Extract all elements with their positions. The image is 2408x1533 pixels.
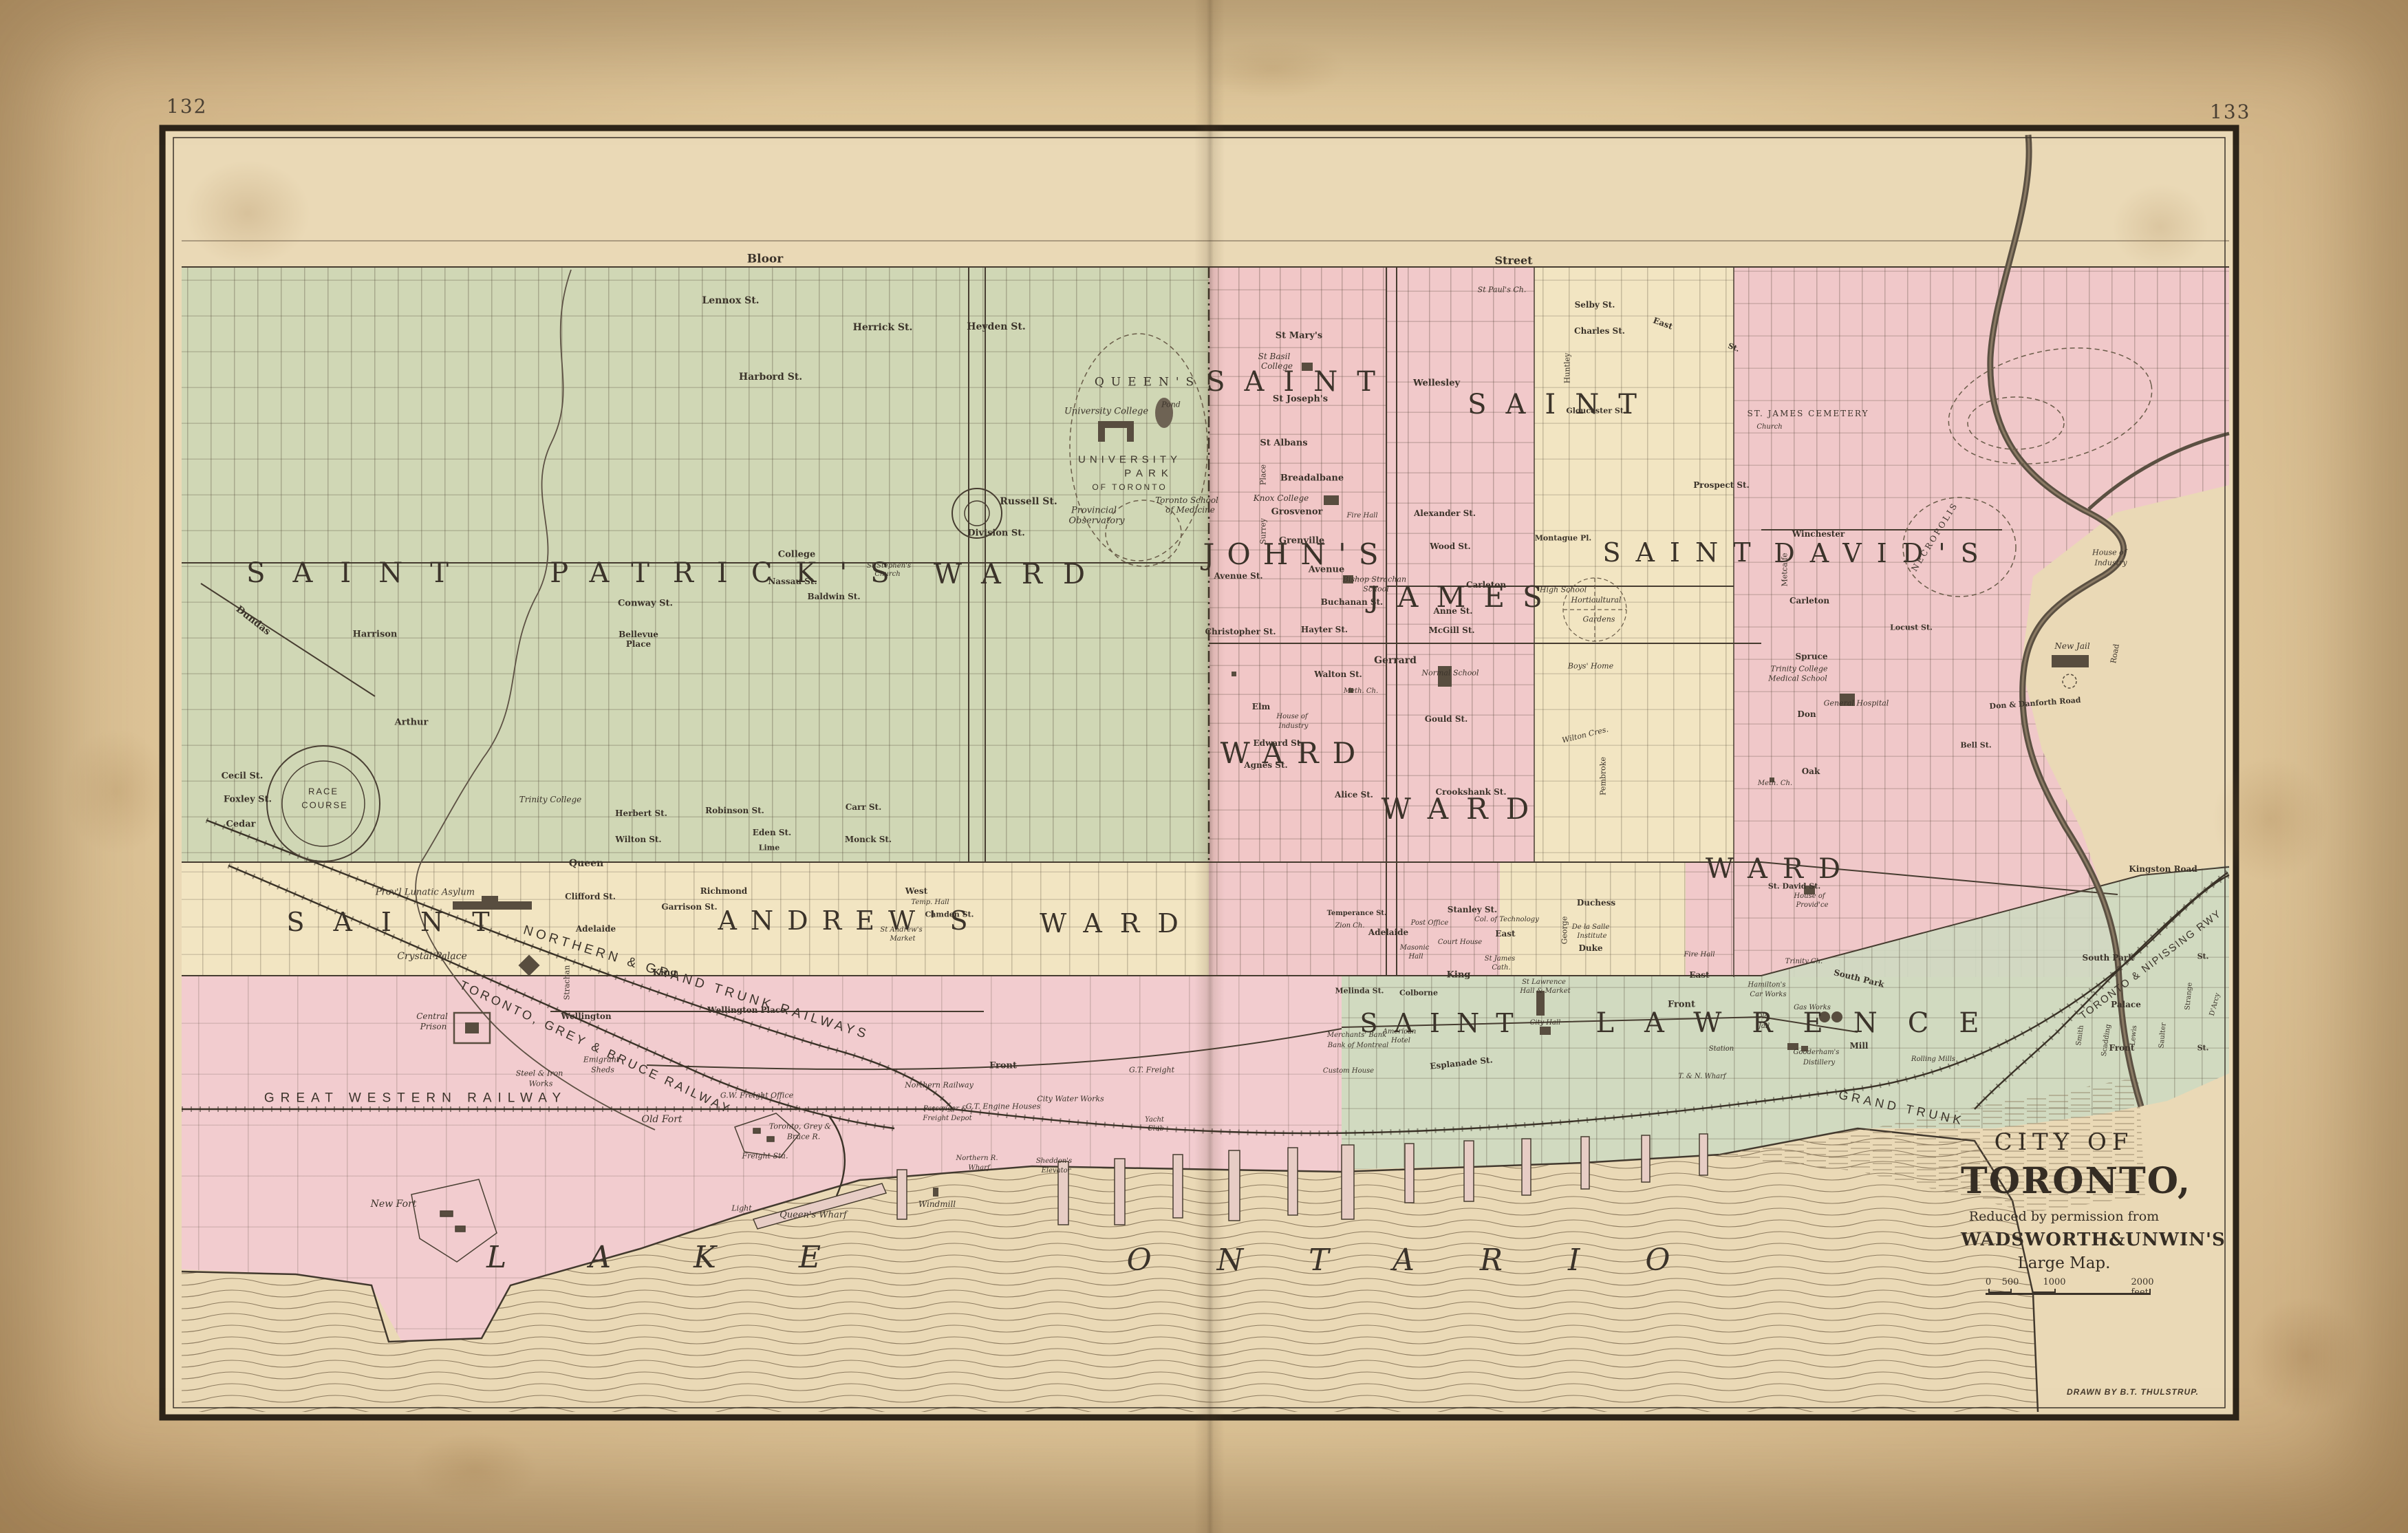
map-label: East xyxy=(1652,316,1674,330)
map-label: Zion Ch. xyxy=(1335,923,1364,930)
map-label: NORTHERN & GRAND TRUNK RAILWAYS xyxy=(522,923,870,1042)
map-label: Distillery xyxy=(1803,1060,1835,1066)
map-label: Pond xyxy=(1161,401,1181,409)
map-label: Herrick St. xyxy=(853,323,913,332)
map-label: Duke xyxy=(1578,944,1602,952)
map-label: Anne St. xyxy=(1434,607,1473,615)
map-label: St Albans xyxy=(1260,439,1307,448)
map-label: Alice St. xyxy=(1335,791,1373,799)
map-label: Smith xyxy=(2076,1025,2085,1046)
map-label: Cecil St. xyxy=(222,772,264,781)
map-label: Gooderham's xyxy=(1794,1049,1840,1056)
map-label: St. xyxy=(2197,1044,2209,1052)
map-label: Central xyxy=(416,1012,448,1020)
map-label: St James xyxy=(1485,956,1516,963)
map-label: Winchester xyxy=(1792,530,1845,538)
map-label: Provid'ce xyxy=(1796,902,1828,909)
map-label: Car Works xyxy=(1750,991,1786,998)
map-label: Don & Danforth Road xyxy=(1989,696,2081,710)
map-label: WARD xyxy=(1221,739,1370,768)
map-label: Adelaide xyxy=(576,925,616,933)
map-label: Pembroke xyxy=(1600,757,1607,795)
map-label: Observatory xyxy=(1068,517,1124,526)
map-label: Place xyxy=(1260,464,1267,485)
map-label: Colborne xyxy=(1399,989,1438,997)
map-label: Carr St. xyxy=(846,803,882,811)
map-label: Bruce R. xyxy=(787,1133,820,1141)
map-label: St Mary's xyxy=(1276,332,1322,341)
map-label: Kingston Road xyxy=(2129,865,2197,873)
map-label: Boys' Home xyxy=(1568,663,1613,670)
map-label: Court House xyxy=(1438,939,1482,946)
map-label: Gas Works xyxy=(1794,1005,1831,1011)
map-label: St Stephen's xyxy=(867,563,911,570)
map-label: WARD xyxy=(1040,910,1196,936)
map-label: SAINT xyxy=(1206,368,1395,396)
map-label: Road xyxy=(2109,643,2120,664)
map-label: House of xyxy=(1794,893,1825,900)
map-label: Grosvenor xyxy=(1271,508,1323,517)
map-label: Street xyxy=(1494,255,1532,266)
map-label: Custom House xyxy=(1323,1068,1374,1075)
map-title: TORONTO, xyxy=(1961,1160,2167,1202)
drawn-by-credit: DRAWN BY B.T. THULSTRUP. xyxy=(2067,1387,2199,1397)
map-label: Esplanade St. xyxy=(1430,1055,1493,1071)
map-labels: BloorStreetLennox St.Herrick St.Heyden S… xyxy=(0,0,2408,1533)
map-label: Queen xyxy=(569,859,603,868)
map-label: Meth. Ch. xyxy=(1758,780,1792,787)
map-label: SAINT xyxy=(246,559,476,587)
map-label: Russell St. xyxy=(1000,497,1057,506)
map-label: Baldwin St. xyxy=(807,592,860,601)
map-label: St. xyxy=(2197,953,2209,961)
map-label: Hamilton's xyxy=(1748,982,1786,989)
map-label: RACE xyxy=(308,787,338,796)
map-label: High School xyxy=(1540,586,1587,594)
map-label: Agnes St. xyxy=(1244,761,1287,769)
map-label: Wellesley xyxy=(1413,379,1460,388)
map-label: Cedar xyxy=(226,820,256,829)
map-label: Meth. Ch. xyxy=(1344,688,1378,695)
map-subtitle: Reduced by permission from xyxy=(1961,1209,2167,1224)
map-label: Gloucester St. xyxy=(1566,407,1626,415)
map-label: Works xyxy=(529,1080,553,1088)
map-label: Church xyxy=(874,571,900,578)
map-label: Provincial xyxy=(1071,506,1117,515)
map-label: G.T. Engine Houses xyxy=(966,1103,1040,1111)
map-label: G.T. Freight xyxy=(1129,1066,1174,1074)
map-label: College xyxy=(1261,362,1293,370)
map-label: Bell St. xyxy=(1960,742,1991,749)
map-label: Gerrard xyxy=(1374,656,1417,665)
map-label: Northern Railway xyxy=(905,1082,974,1089)
map-label: Conway St. xyxy=(618,599,673,608)
map-label: Garrison St. xyxy=(661,903,717,911)
map-label: City Hall xyxy=(1530,1020,1561,1027)
map-label: George xyxy=(1561,916,1569,945)
map-label: Gould St. xyxy=(1425,715,1468,723)
map-label: Huntley xyxy=(1564,353,1571,383)
map-label: South Park xyxy=(1833,968,1885,989)
map-label: Don xyxy=(1797,710,1816,718)
map-label: G.W. Freight Office xyxy=(720,1092,793,1100)
map-label: University College xyxy=(1064,407,1148,416)
map-label: Selby St. xyxy=(1575,301,1615,309)
map-label: Richmond xyxy=(700,887,747,895)
map-label: DAVID'S xyxy=(1774,540,1993,566)
map-label: Breadalbane xyxy=(1280,474,1344,483)
map-label: Church xyxy=(1756,424,1782,431)
map-label: Temp. Hall xyxy=(911,899,949,906)
map-label: City Water Works xyxy=(1037,1095,1104,1103)
map-label: Freight Depot xyxy=(923,1115,971,1122)
map-label: Hall & Market xyxy=(1520,988,1570,995)
map-label: De la Salle xyxy=(1572,924,1610,931)
map-label: Institute xyxy=(1577,933,1606,940)
map-label: St. David St. xyxy=(1768,883,1820,890)
map-label: Oak xyxy=(1802,767,1820,775)
map-label: GRAND TRUNK xyxy=(1838,1089,1966,1127)
map-label: St Joseph's xyxy=(1273,395,1328,404)
map-label: Masonic xyxy=(1400,945,1430,952)
map-label: Strange xyxy=(2184,982,2193,1010)
map-label: Herbert St. xyxy=(615,809,667,817)
map-label: Toronto School xyxy=(1155,496,1218,504)
map-label: Toronto, Grey & xyxy=(769,1123,831,1130)
map-label: LAWRENCE xyxy=(1595,1009,2009,1037)
map-label: of Medicine xyxy=(1165,506,1215,514)
map-title-suffix: Large Map. xyxy=(1961,1254,2167,1272)
map-label: Windmill xyxy=(918,1200,956,1208)
map-label: Dundas xyxy=(234,604,272,637)
map-label: Duchess xyxy=(1577,899,1615,907)
map-label: WARD xyxy=(1382,795,1547,824)
map-label: Alexander St. xyxy=(1414,509,1476,517)
map-label: Lewis xyxy=(2130,1025,2139,1046)
map-label: Monck St. xyxy=(845,835,892,844)
map-label: Emigrant xyxy=(583,1056,619,1064)
map-label: Avenue St. xyxy=(1214,572,1262,580)
map-label: Locust St. xyxy=(1890,624,1933,632)
map-label: ST. JAMES CEMETERY xyxy=(1748,409,1869,418)
map-label: Adelaide xyxy=(1368,928,1408,936)
map-label: Elevator xyxy=(1042,1168,1071,1175)
map-label: Wellington xyxy=(561,1012,611,1020)
map-label: Clifford St. xyxy=(565,892,616,901)
map-label: Post Office xyxy=(1411,920,1449,927)
map-label: Harrison xyxy=(353,630,398,639)
map-label: Robinson St. xyxy=(705,806,764,815)
map-label: American xyxy=(1383,1029,1417,1036)
map-label: Bank of Montreal xyxy=(1328,1042,1388,1049)
map-label: Spruce xyxy=(1795,652,1827,661)
map-label: Front xyxy=(1668,1000,1695,1009)
map-label: New Jail xyxy=(2054,642,2089,650)
map-label: Nassau St. xyxy=(768,577,817,586)
map-label: Knox College xyxy=(1254,494,1309,502)
map-label: Normal School xyxy=(1421,669,1479,677)
map-label: Gardens xyxy=(1583,616,1615,623)
map-label: Charles St. xyxy=(1574,327,1625,335)
map-label: St Basil xyxy=(1258,352,1291,361)
map-label: Prospect St. xyxy=(1693,481,1750,489)
map-label: House of xyxy=(2092,549,2127,557)
scale-label: 1000 xyxy=(2043,1277,2065,1287)
map-label: Hall xyxy=(1408,954,1423,961)
map-label: Station xyxy=(1709,1046,1734,1053)
map-label: Crystal Palace xyxy=(397,952,467,961)
map-label: LAKE xyxy=(486,1243,903,1273)
map-label: General Hospital xyxy=(1824,700,1889,707)
map-label: SAINT xyxy=(1602,539,1765,566)
publisher-credit: WADSWORTH&UNWIN'S xyxy=(1961,1230,2167,1250)
map-label: Harbord St. xyxy=(739,372,802,382)
map-label: Bloor xyxy=(747,254,783,266)
map-label: Cath. xyxy=(1492,965,1510,972)
map-label: Passenger & xyxy=(923,1106,967,1113)
map-label: Light xyxy=(731,1205,751,1212)
map-label: Lennox St. xyxy=(702,296,759,305)
map-label: Wellington Place xyxy=(707,1006,786,1014)
map-label: Carleton xyxy=(1789,597,1829,605)
map-label: Palace xyxy=(2111,1000,2141,1009)
map-label: OF TORONTO xyxy=(1092,483,1167,491)
map-label: Hayter St. xyxy=(1301,625,1348,634)
map-label: ONTARIO xyxy=(1127,1245,1736,1276)
map-label: Arthur xyxy=(395,718,429,727)
map-label: House of xyxy=(1276,714,1307,720)
map-label: Prison xyxy=(420,1022,447,1031)
map-label: Rolling Mills xyxy=(1911,1056,1955,1063)
map-label: Merchants' Bank xyxy=(1327,1032,1386,1039)
map-label: Yacht xyxy=(1145,1117,1164,1124)
map-label: Industry xyxy=(2094,559,2127,567)
map-label: Stanley St. xyxy=(1448,905,1497,914)
map-label: Wilton St. xyxy=(615,835,661,844)
map-label: Prov'l Lunatic Asylum xyxy=(376,888,475,897)
map-label: Wharf xyxy=(968,1165,989,1172)
map-label: Northern R. xyxy=(956,1155,998,1162)
map-label: Old Fort xyxy=(641,1115,682,1124)
scale-label: 0 xyxy=(1986,1277,1991,1287)
map-label: Strachan xyxy=(563,965,571,1000)
page-number-left: 132 xyxy=(166,95,207,118)
map-label: D'Arcy xyxy=(2209,992,2222,1016)
map-label: Col. of Technology xyxy=(1474,916,1539,923)
map-label: Horticultural xyxy=(1571,597,1621,604)
map-label: Fire Hall xyxy=(1684,952,1714,958)
map-label: Place xyxy=(626,640,651,648)
map-label: East xyxy=(1689,971,1709,979)
map-label: Melinda St. xyxy=(1335,987,1384,995)
map-label: T. & N. Wharf xyxy=(1678,1073,1726,1080)
map-label: Hotel xyxy=(1391,1038,1410,1044)
map-label: Bellevue xyxy=(619,630,658,639)
map-label: Medical School xyxy=(1768,675,1827,683)
map-label: JOHN'S xyxy=(1203,540,1391,569)
map-label: Sheddon's xyxy=(1036,1158,1072,1165)
map-label: Freight Sta. xyxy=(742,1153,788,1160)
scale-bar: 0 500 1000 2000 feet. xyxy=(1983,1277,2155,1299)
map-label: Temperance St. xyxy=(1327,910,1387,917)
map-label: Jail xyxy=(1759,1023,1770,1030)
map-label: Saulter xyxy=(2158,1022,2167,1049)
map-label: COURSE xyxy=(301,801,348,810)
map-label: South Park xyxy=(2083,954,2134,962)
map-label: Market xyxy=(890,936,916,943)
map-label: Division St. xyxy=(967,529,1025,538)
map-label: King xyxy=(1447,971,1471,980)
scale-label: 500 xyxy=(2002,1277,2019,1287)
map-label: Mill xyxy=(1850,1042,1869,1050)
map-label: Fire Hall xyxy=(1346,513,1377,519)
map-label: Trinity College xyxy=(1771,665,1828,673)
map-label: TORONTO & NIPISSING RWY xyxy=(2078,908,2224,1022)
map-label: Walton St. xyxy=(1314,670,1362,678)
map-label: College xyxy=(778,550,816,559)
map-label: SAINT xyxy=(1468,391,1656,418)
map-label: Old xyxy=(1756,1014,1769,1020)
map-label: QUEEN'S xyxy=(1095,377,1201,389)
map-label: St. xyxy=(1727,342,1741,353)
map-label: Trinity Ch. xyxy=(1785,958,1823,965)
map-label: Steel & Iron xyxy=(516,1070,563,1078)
map-label: Camden St. xyxy=(925,911,974,919)
map-label: McGill St. xyxy=(1428,626,1474,634)
map-label: Heyden St. xyxy=(967,322,1025,332)
map-label: Club xyxy=(1148,1126,1164,1133)
map-label: WARD xyxy=(1706,855,1856,883)
map-title-prefix: CITY OF xyxy=(1961,1128,2167,1156)
map-label: East xyxy=(1495,930,1515,938)
map-label: PATRICK'S xyxy=(550,559,912,587)
page-number-right: 133 xyxy=(2210,100,2250,123)
map-label: SAINT xyxy=(286,909,518,935)
map-label: Foxley St. xyxy=(224,795,272,804)
map-label: Sheds xyxy=(591,1066,614,1074)
map-label: Lime xyxy=(759,844,780,852)
map-label: Wilton Cres. xyxy=(1561,725,1609,744)
map-label: Metcalfe xyxy=(1781,553,1789,586)
map-label: PARK xyxy=(1124,469,1174,479)
map-label: Trinity College xyxy=(519,795,582,804)
map-label: St Lawrence xyxy=(1522,979,1566,986)
map-label: WARD xyxy=(934,561,1106,588)
map-label: Wood St. xyxy=(1430,542,1470,550)
map-label: Eden St. xyxy=(753,828,791,837)
title-block: CITY OF TORONTO, Reduced by permission f… xyxy=(1961,1128,2167,1272)
map-label: West xyxy=(905,887,927,895)
map-label: St Andrew's xyxy=(880,927,922,934)
map-label: Christopher St. xyxy=(1205,628,1276,636)
map-label: Montague Pl. xyxy=(1535,535,1592,542)
map-label: Elm xyxy=(1252,703,1270,711)
map-label: Front xyxy=(989,1062,1017,1071)
atlas-page-scan: { "page": { "left_number": "132", "right… xyxy=(0,0,2408,1533)
map-label: New Fort xyxy=(371,1199,417,1209)
map-label: UNIVERSITY xyxy=(1078,455,1181,465)
map-label: GREAT WESTERN RAILWAY xyxy=(264,1092,567,1105)
map-label: St Paul's Ch. xyxy=(1478,286,1527,294)
map-label: Queen's Wharf xyxy=(780,1211,847,1220)
map-label: Industry xyxy=(1279,723,1309,730)
